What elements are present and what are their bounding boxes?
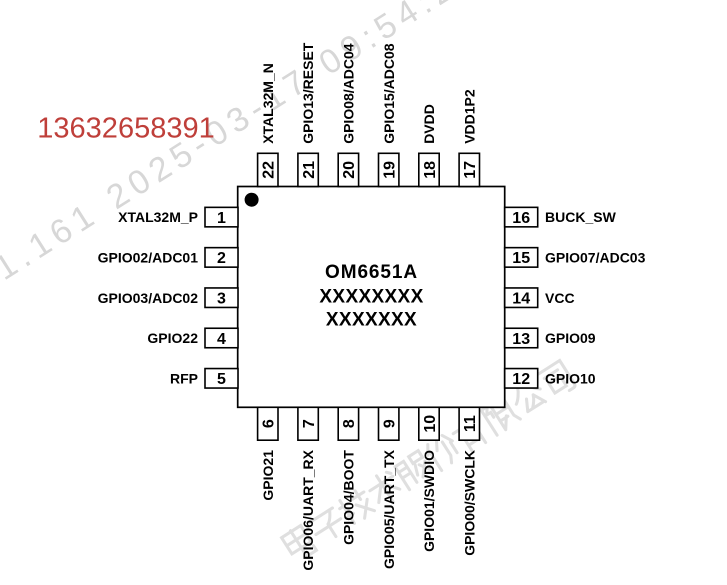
svg-text:GPIO01/SWDIO: GPIO01/SWDIO [421,450,437,552]
svg-text:GPIO10: GPIO10 [545,370,596,386]
svg-text:GPIO21: GPIO21 [260,450,276,501]
svg-text:VCC: VCC [545,290,575,306]
svg-text:6: 6 [261,419,278,428]
svg-text:9: 9 [382,419,399,428]
svg-text:18: 18 [422,161,439,179]
svg-text:13: 13 [512,331,530,348]
svg-text:21: 21 [301,161,318,179]
svg-text:17: 17 [462,161,479,179]
svg-text:RFP: RFP [170,370,198,386]
svg-text:7: 7 [301,419,318,428]
svg-text:20: 20 [341,161,358,179]
svg-text:12: 12 [512,371,530,388]
svg-text:VDD1P2: VDD1P2 [461,89,477,144]
svg-text:2: 2 [217,250,226,267]
svg-text:22: 22 [261,161,278,179]
svg-text:11: 11 [462,415,479,432]
svg-text:XTAL32M_N: XTAL32M_N [260,63,276,144]
svg-text:GPIO15/ADC08: GPIO15/ADC08 [381,43,397,144]
svg-text:OM6651A: OM6651A [325,262,418,283]
svg-text:XXXXXXXX: XXXXXXXX [319,286,423,307]
svg-text:GPIO06/UART_RX: GPIO06/UART_RX [300,449,316,570]
svg-text:5: 5 [217,371,226,388]
svg-text:14: 14 [512,291,530,308]
svg-text:15: 15 [512,250,530,267]
svg-text:1: 1 [217,210,226,227]
svg-text:19: 19 [382,161,399,179]
svg-text:GPIO08/ADC04: GPIO08/ADC04 [341,43,357,144]
svg-text:8: 8 [341,419,358,428]
svg-text:GPIO02/ADC01: GPIO02/ADC01 [98,250,199,266]
svg-text:GPIO13/RESET: GPIO13/RESET [300,42,316,144]
svg-text:GPIO05/UART_TX: GPIO05/UART_TX [381,449,397,569]
svg-text:XTAL32M_P: XTAL32M_P [118,209,198,225]
svg-text:XXXXXXX: XXXXXXX [326,310,417,331]
svg-text:13632658391: 13632658391 [37,112,214,144]
svg-text:10: 10 [422,415,439,433]
svg-text:BUCK_SW: BUCK_SW [545,209,617,225]
svg-text:4: 4 [217,331,226,348]
svg-text:GPIO04/BOOT: GPIO04/BOOT [341,450,357,545]
svg-text:GPIO22: GPIO22 [147,330,198,346]
svg-text:16: 16 [512,210,530,227]
svg-text:GPIO07/ADC03: GPIO07/ADC03 [545,250,646,266]
svg-text:GPIO09: GPIO09 [545,330,596,346]
svg-text:GPIO00/SWCLK: GPIO00/SWCLK [461,450,477,556]
svg-text:DVDD: DVDD [421,104,437,144]
svg-text:3: 3 [217,291,226,308]
svg-text:GPIO03/ADC02: GPIO03/ADC02 [98,290,199,306]
